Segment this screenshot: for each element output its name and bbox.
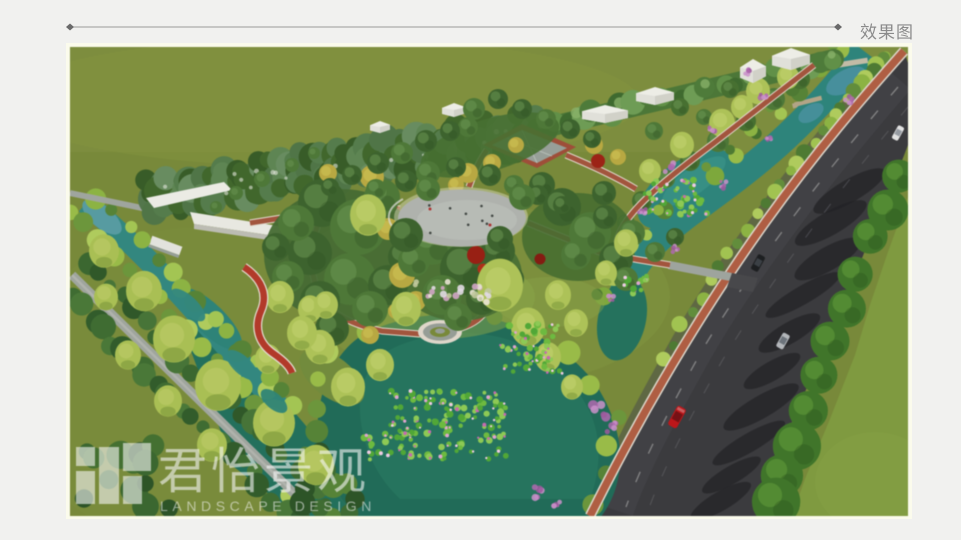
svg-text:LANDSCAPE DESIGN: LANDSCAPE DESIGN bbox=[160, 498, 376, 514]
svg-text:君怡景观: 君怡景观 bbox=[158, 445, 370, 499]
